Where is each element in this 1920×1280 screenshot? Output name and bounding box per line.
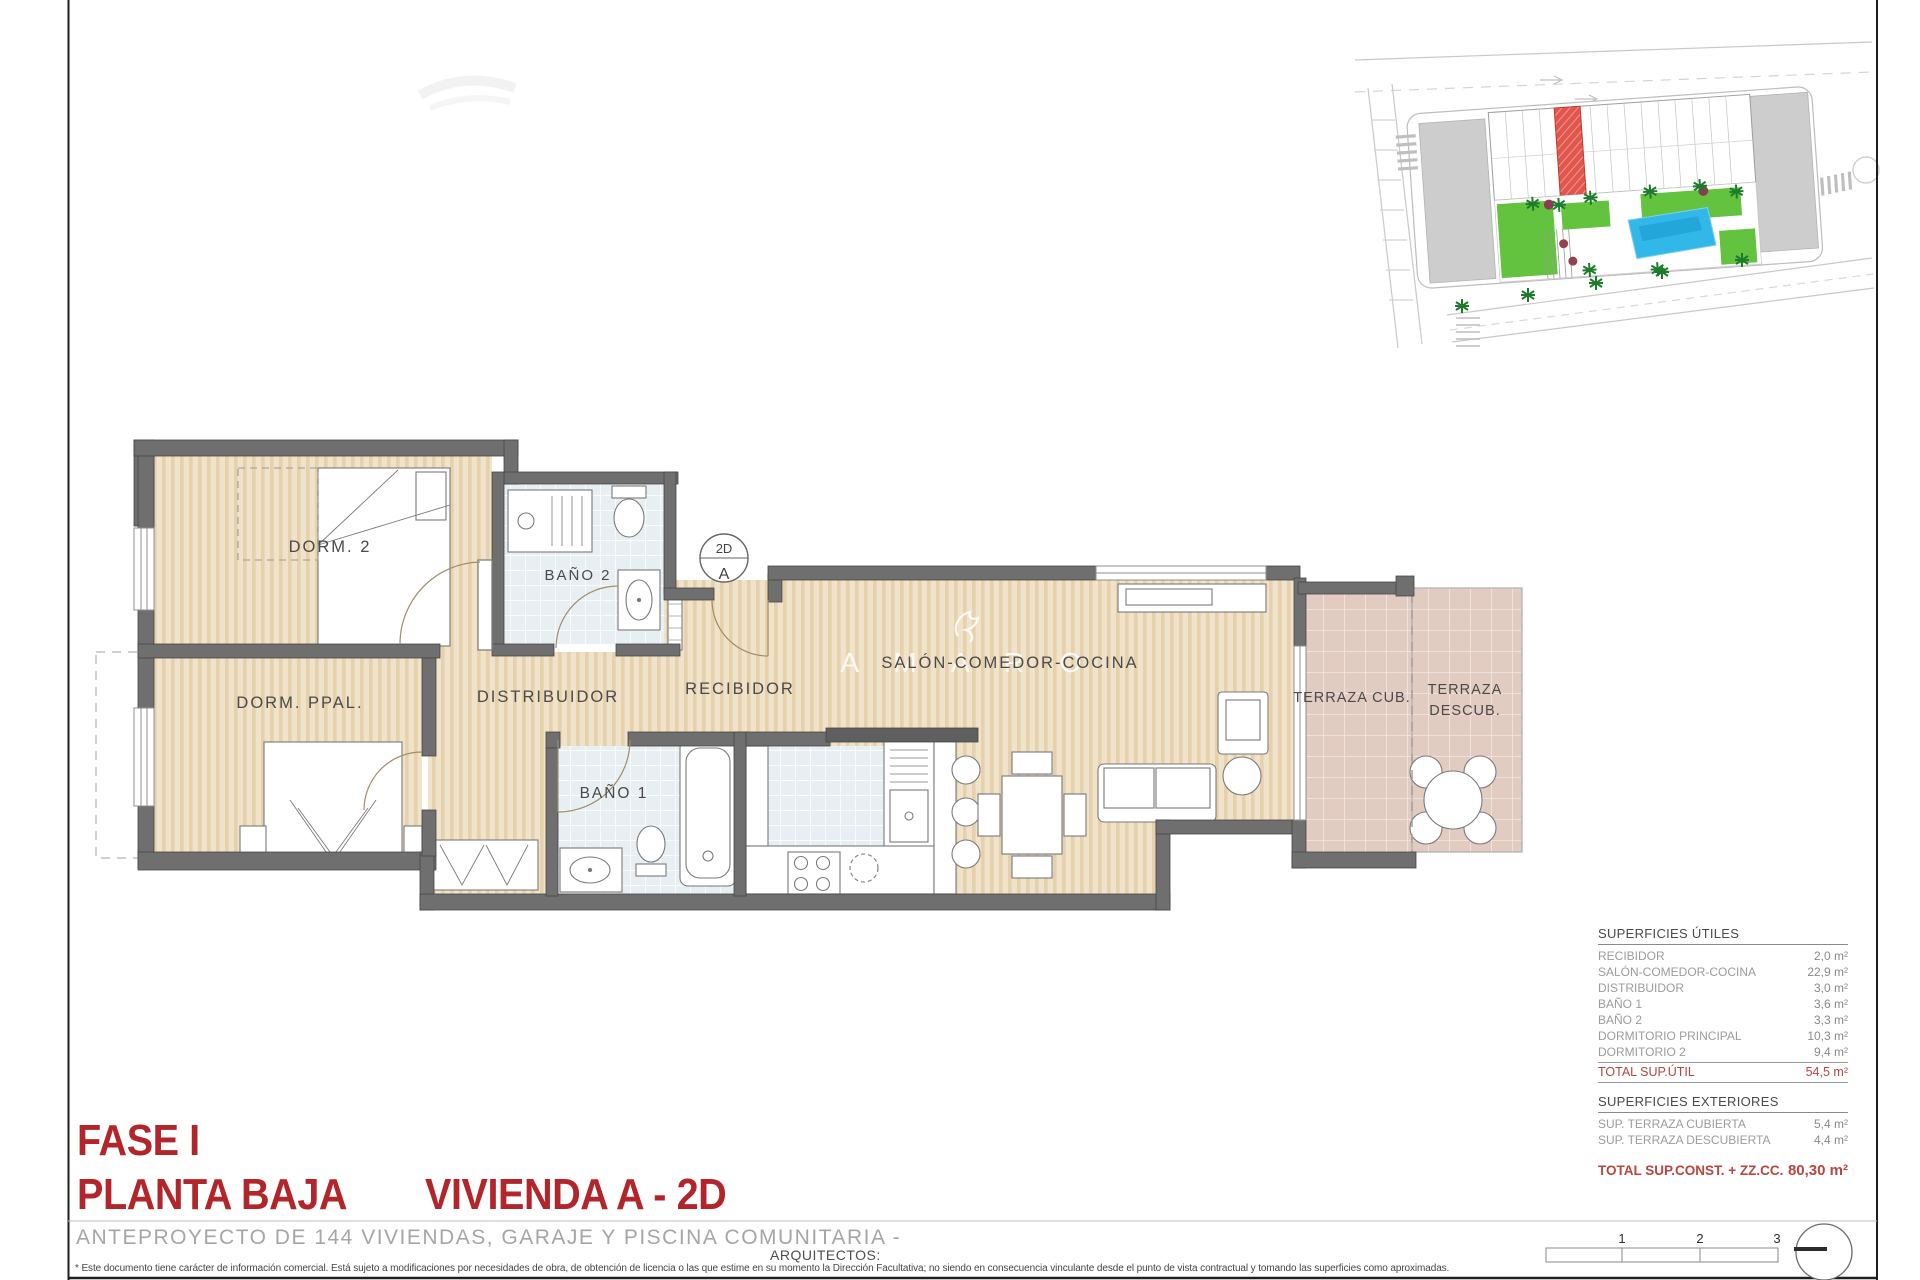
room-label-terraza-descub-2: DESCUB.: [1429, 703, 1500, 719]
site-building-right: [1750, 92, 1819, 252]
north-symbol: [1794, 1224, 1852, 1280]
row-value: 10,3 m²: [1807, 1028, 1848, 1044]
grand-total-row: TOTAL SUP.CONST. + ZZ.CC.80,30 m²: [1598, 1161, 1848, 1181]
site-building-left: [1419, 119, 1496, 283]
site-stairs: [1456, 318, 1480, 346]
table-row: DORMITORIO 29,4 m²: [1598, 1044, 1848, 1060]
table-row: BAÑO 13,6 m²: [1598, 996, 1848, 1012]
row-value: 2,0 m²: [1814, 948, 1848, 964]
scale-tick-3: 3: [1771, 1231, 1783, 1246]
scale-tick-2: 2: [1694, 1231, 1706, 1246]
row-label: SUP. TERRAZA CUBIERTA: [1598, 1116, 1746, 1132]
room-label-terraza-descub-1: TERRAZA: [1428, 682, 1503, 698]
total-label: TOTAL SUP.ÚTIL: [1598, 1063, 1695, 1082]
room-label-dorm2: DORM. 2: [289, 538, 372, 556]
table-row: DORMITORIO PRINCIPAL10,3 m²: [1598, 1028, 1848, 1044]
table-row: SALÓN-COMEDOR-COCINA22,9 m²: [1598, 964, 1848, 980]
table-row: DISTRIBUIDOR3,0 m²: [1598, 980, 1848, 996]
utiles-total-row: TOTAL SUP.ÚTIL54,5 m²: [1598, 1062, 1848, 1083]
table-row: BAÑO 23,3 m²: [1598, 1012, 1848, 1028]
graphic-scale-bar: [1546, 1248, 1778, 1262]
table-row: SUP. TERRAZA CUBIERTA5,4 m²: [1598, 1116, 1848, 1132]
row-value: 5,4 m²: [1814, 1116, 1848, 1132]
row-value: 9,4 m²: [1814, 1044, 1848, 1060]
superficies-exteriores-table: SUPERFICIES EXTERIORES SUP. TERRAZA CUBI…: [1598, 1094, 1848, 1181]
row-value: 3,3 m²: [1814, 1012, 1848, 1028]
floor-title: PLANTA BAJA: [77, 1170, 347, 1220]
table-row: RECIBIDOR2,0 m²: [1598, 948, 1848, 964]
site-plan-inset: [1355, 42, 1879, 348]
room-label-recibidor: RECIBIDOR: [685, 680, 795, 698]
row-label: SUP. TERRAZA DESCUBIERTA: [1598, 1132, 1771, 1148]
row-label: SALÓN-COMEDOR-COCINA: [1598, 964, 1756, 980]
marker-top-label: 2D: [716, 541, 733, 556]
row-label: RECIBIDOR: [1598, 948, 1665, 964]
row-label: BAÑO 1: [1598, 996, 1642, 1012]
room-label-dorm-ppal: DORM. PPAL.: [236, 694, 363, 712]
row-label: BAÑO 2: [1598, 1012, 1642, 1028]
superficies-utiles-table: SUPERFICIES ÚTILES RECIBIDOR2,0 m² SALÓN…: [1598, 926, 1848, 1083]
unit-title: VIVIENDA A - 2D: [425, 1170, 726, 1220]
row-label: DORMITORIO 2: [1598, 1044, 1686, 1060]
exteriores-table-title: SUPERFICIES EXTERIORES: [1598, 1094, 1848, 1113]
disclaimer-text: * Este documento tiene carácter de infor…: [75, 1263, 1449, 1274]
room-label-terraza-cub: TERRAZA CUB.: [1293, 690, 1411, 706]
row-label: DISTRIBUIDOR: [1598, 980, 1684, 996]
site-highlighted-unit: [1554, 106, 1586, 196]
site-parcel: [1394, 84, 1855, 294]
unit-marker: 2D A: [700, 534, 748, 583]
row-value: 3,0 m²: [1814, 980, 1848, 996]
room-label-distribuidor: DISTRIBUIDOR: [477, 688, 619, 706]
room-label-bano1: BAÑO 1: [580, 785, 649, 802]
floor-plan: A M A R O: [96, 440, 1522, 910]
row-value: 22,9 m²: [1807, 964, 1848, 980]
table-row: SUP. TERRAZA DESCUBIERTA4,4 m²: [1598, 1132, 1848, 1148]
room-label-bano2: BAÑO 2: [544, 567, 611, 584]
site-building-row: [1488, 94, 1756, 200]
plan-sheet: A M A R O: [0, 0, 1920, 1280]
marker-bottom-label: A: [719, 566, 730, 583]
row-value: 3,6 m²: [1814, 996, 1848, 1012]
phase-title: FASE I: [77, 1116, 200, 1166]
room-label-salon: SALÓN-COMEDOR-COCINA: [881, 653, 1138, 672]
total-value: 54,5 m²: [1806, 1063, 1848, 1082]
total-label: TOTAL SUP.CONST. + ZZ.CC.: [1598, 1161, 1783, 1181]
total-value: 80,30 m²: [1788, 1161, 1848, 1181]
utiles-table-title: SUPERFICIES ÚTILES: [1598, 926, 1848, 945]
row-label: DORMITORIO PRINCIPAL: [1598, 1028, 1742, 1044]
paper-smudge: [420, 80, 515, 108]
architects-label: ARQUITECTOS:: [770, 1247, 881, 1263]
row-value: 4,4 m²: [1814, 1132, 1848, 1148]
scale-tick-1: 1: [1616, 1231, 1628, 1246]
drawing-canvas: A M A R O: [0, 0, 1920, 1280]
